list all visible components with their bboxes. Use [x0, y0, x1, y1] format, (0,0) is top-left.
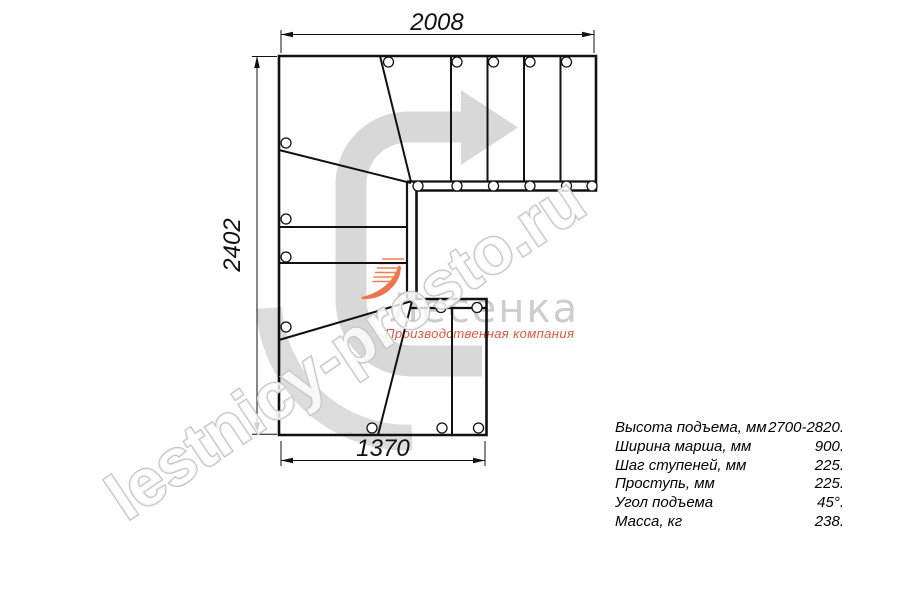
spec-label: Высота подъема, мм [615, 419, 767, 438]
spec-value: 900. [815, 438, 844, 457]
dimension-bottom-value: 1370 [356, 435, 410, 462]
dimension-bottom: 1370 [281, 435, 485, 466]
staircase-drawing-page: Лесенка Производственная компания [0, 0, 900, 600]
spec-value: 45°. [817, 494, 844, 513]
spec-label: Масса, кг [615, 513, 682, 532]
spec-row-step-pitch: Шаг ступеней, мм 225. [615, 457, 844, 476]
spec-label: Шаг ступеней, мм [615, 457, 746, 476]
spec-label: Угол подъема [615, 494, 713, 513]
spec-value: 238. [815, 513, 844, 532]
spec-row-height: Высота подъема, мм 2700-2820. [615, 419, 844, 438]
dimension-top: 2008 [281, 9, 594, 53]
spec-row-march-width: Ширина марша, мм 900. [615, 438, 844, 457]
spec-row-tread: Проступь, мм 225. [615, 475, 844, 494]
dimension-left-value: 2402 [219, 218, 246, 272]
spec-label: Проступь, мм [615, 475, 715, 494]
spec-row-angle: Угол подъема 45°. [615, 494, 844, 513]
dimension-top-value: 2008 [409, 9, 464, 36]
spec-value: 2700-2820. [768, 419, 844, 438]
direction-arrow-head [461, 90, 518, 165]
spec-table: Высота подъема, мм 2700-2820. Ширина мар… [615, 419, 844, 532]
spec-value: 225. [815, 457, 844, 476]
spec-label: Ширина марша, мм [615, 438, 751, 457]
spec-value: 225. [815, 475, 844, 494]
spec-row-mass: Масса, кг 238. [615, 513, 844, 532]
